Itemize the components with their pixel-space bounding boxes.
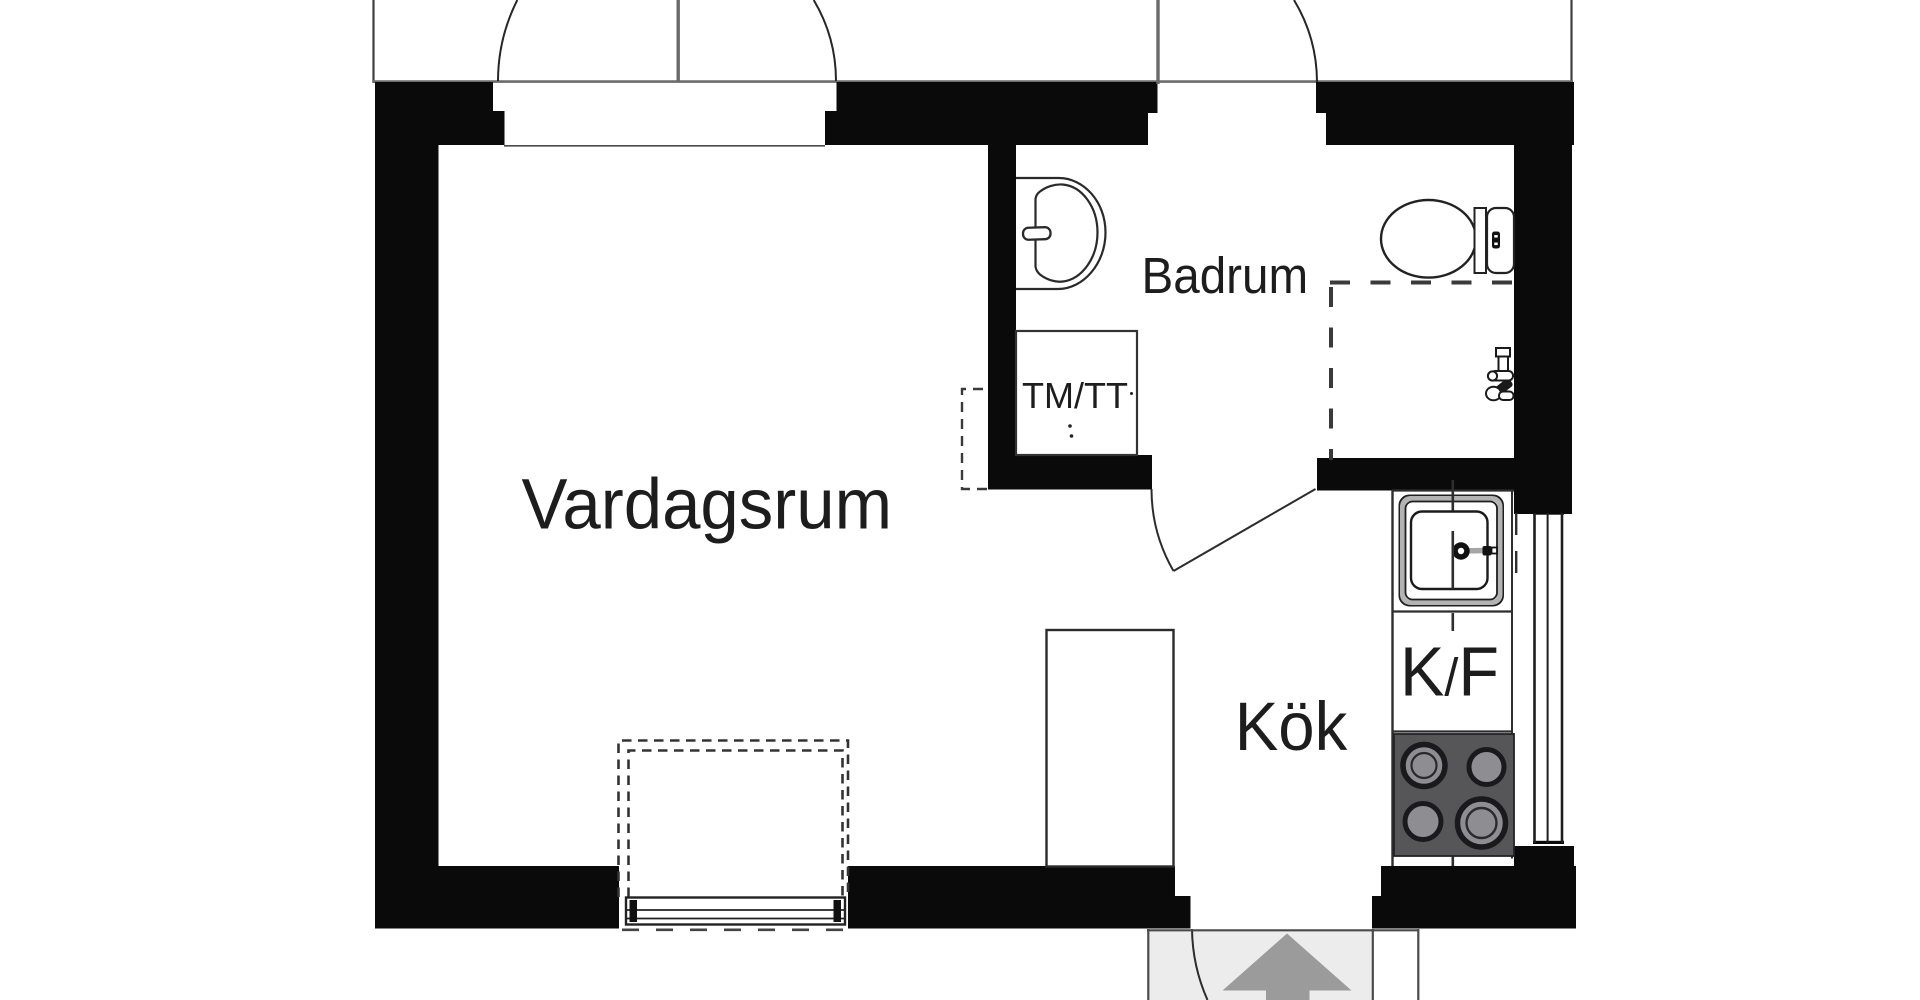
svg-text:TM/TT: TM/TT [1022, 375, 1128, 416]
svg-text:Kök: Kök [1235, 689, 1348, 766]
svg-text:Badrum: Badrum [1142, 248, 1309, 305]
svg-text:Vardagsrum: Vardagsrum [522, 465, 893, 544]
